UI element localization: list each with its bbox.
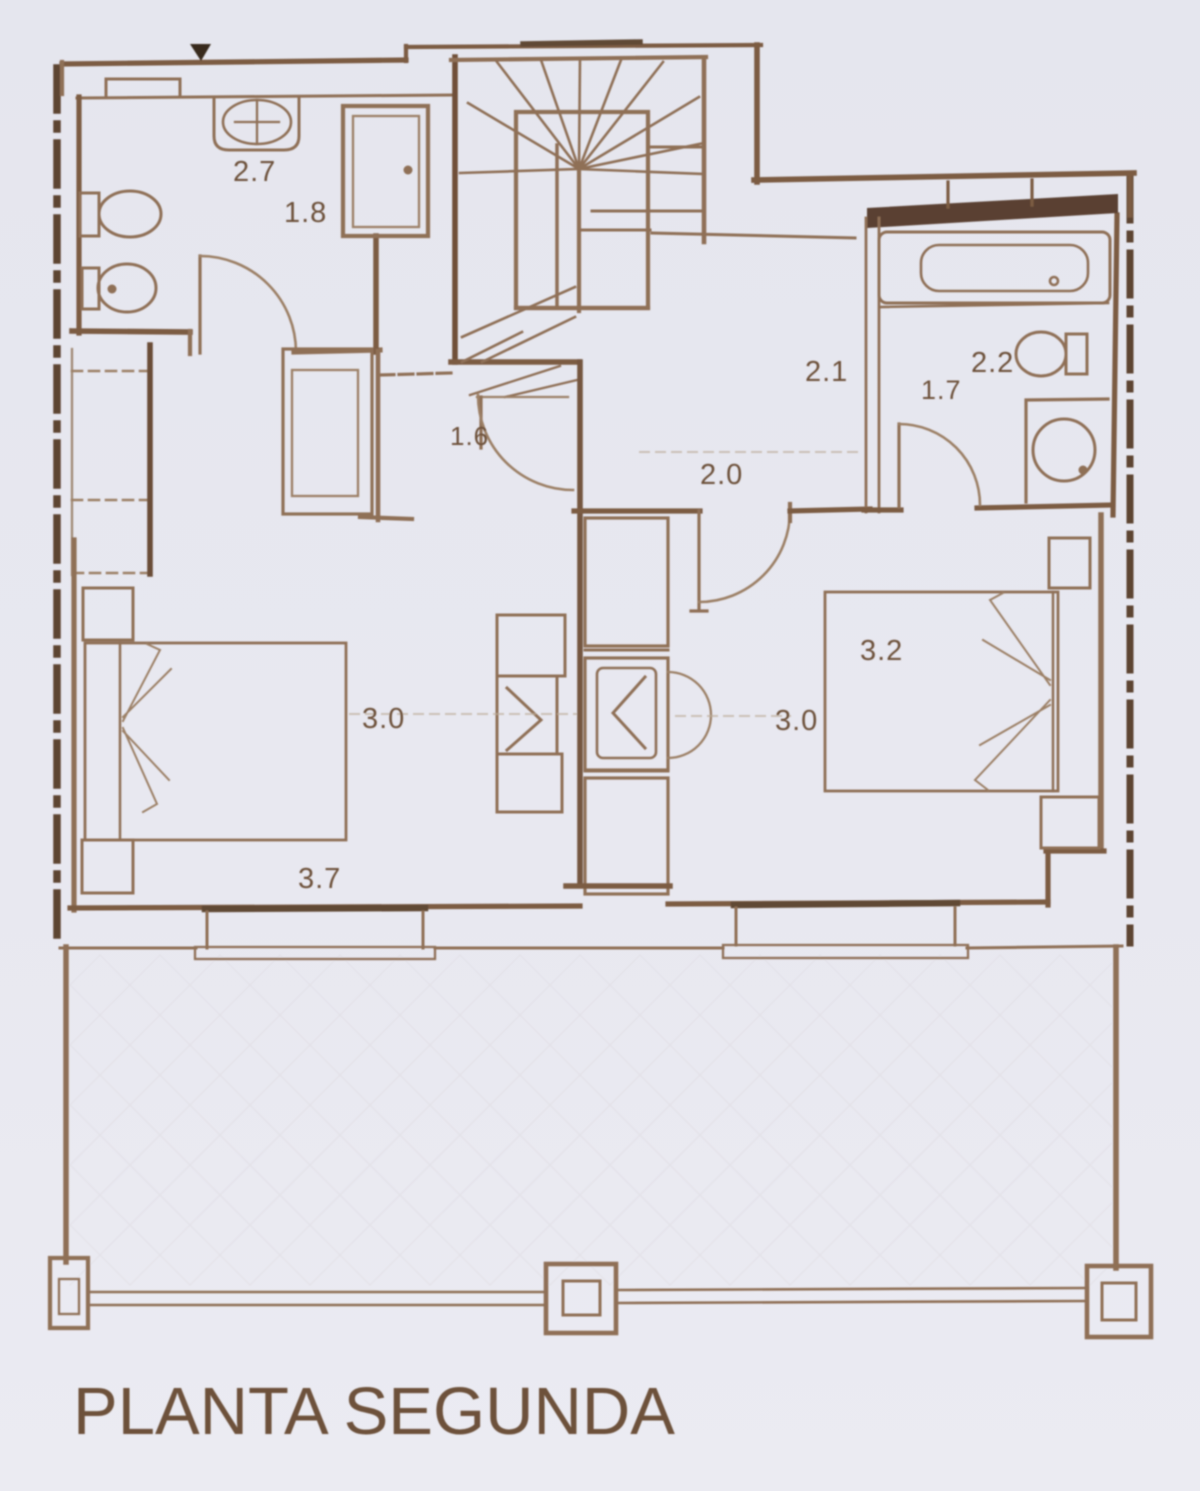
svg-text:1.7: 1.7 (921, 375, 962, 405)
svg-text:2.0: 2.0 (700, 459, 743, 491)
svg-text:3.7: 3.7 (298, 863, 341, 895)
svg-text:3.0: 3.0 (362, 703, 405, 735)
svg-text:1.8: 1.8 (284, 197, 327, 229)
svg-text:2.2: 2.2 (971, 347, 1014, 379)
svg-text:2.7: 2.7 (233, 156, 276, 188)
svg-text:PLANTA SEGUNDA: PLANTA SEGUNDA (73, 1374, 675, 1449)
svg-text:3.2: 3.2 (860, 635, 903, 667)
svg-text:2.1: 2.1 (805, 356, 848, 388)
svg-text:3.0: 3.0 (775, 705, 818, 737)
svg-text:1.6: 1.6 (450, 421, 489, 451)
